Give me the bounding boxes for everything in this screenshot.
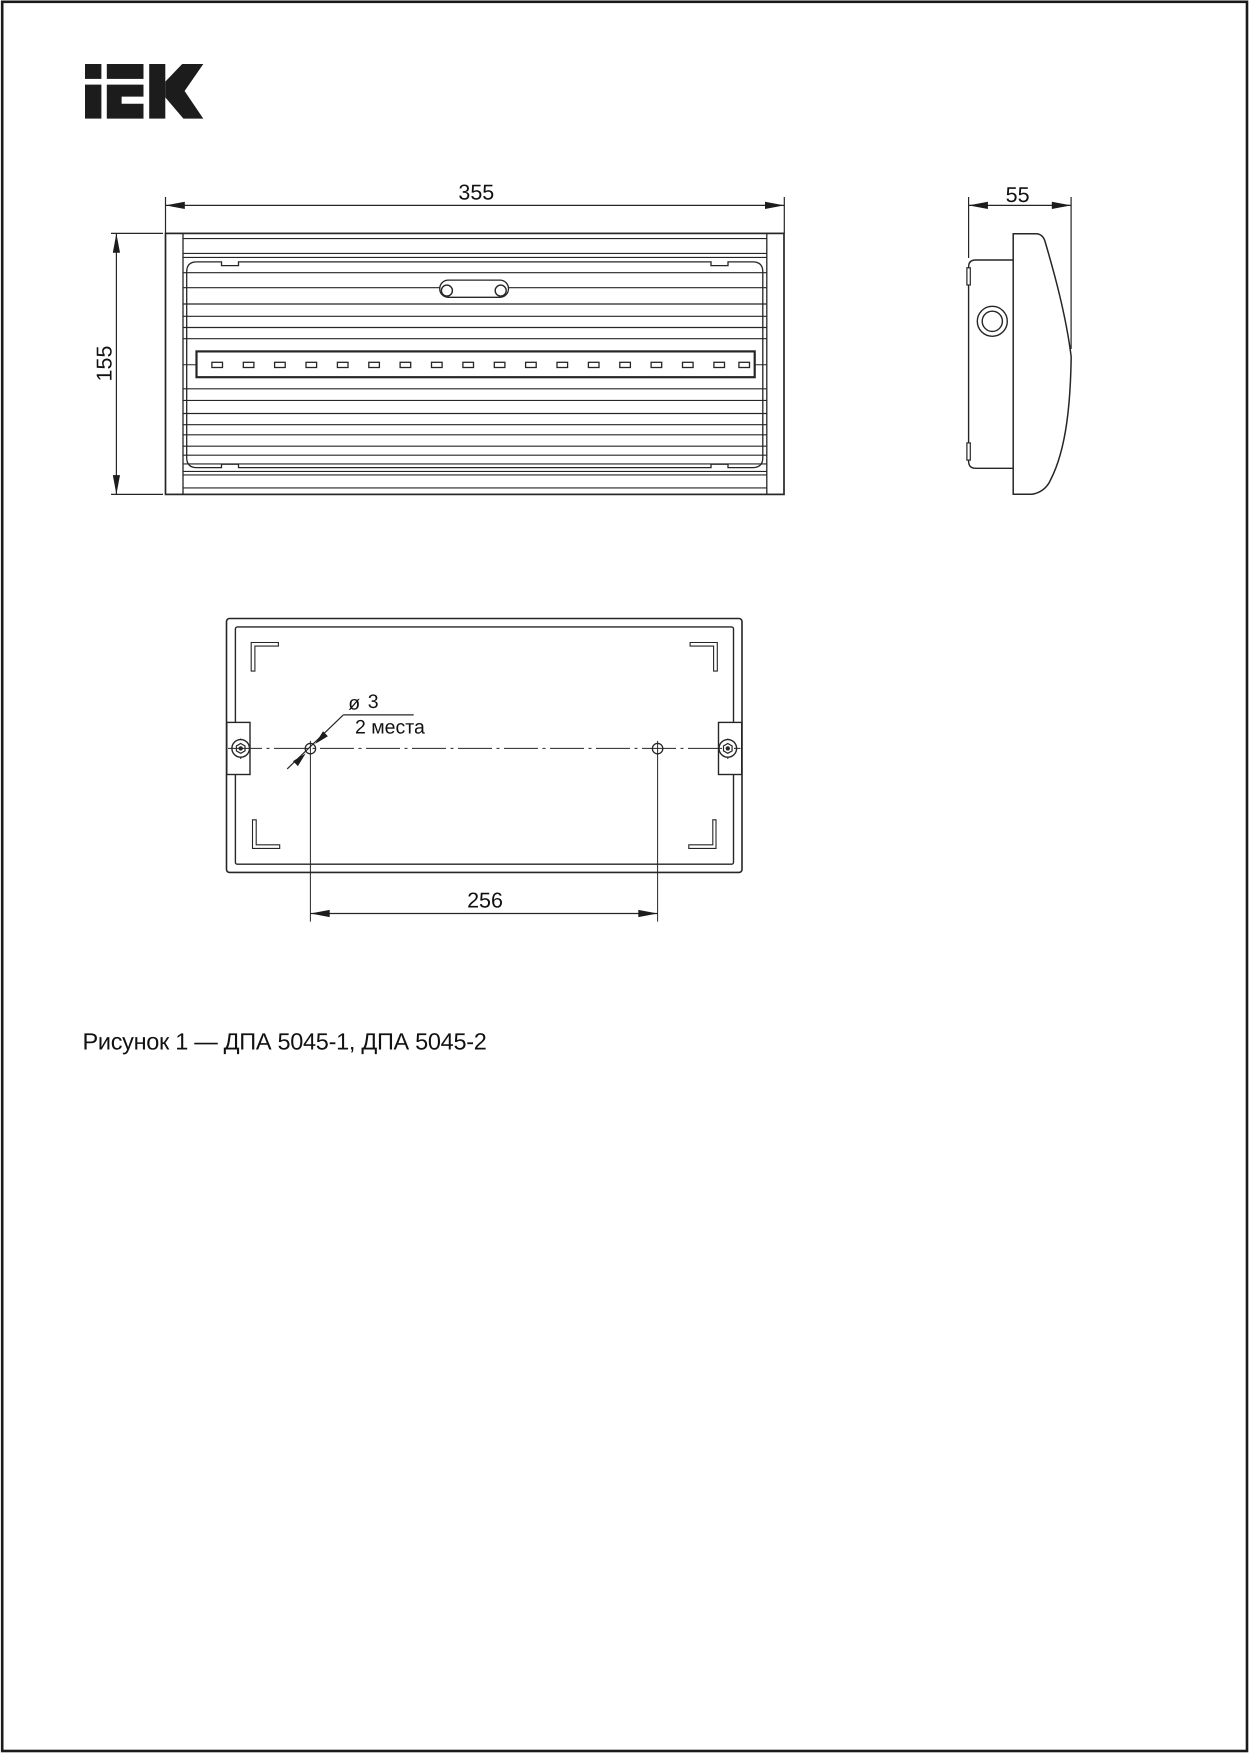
svg-text:355: 355 xyxy=(458,181,494,205)
svg-text:Рисунок 1 — ДПА 5045-1, ДПА 50: Рисунок 1 — ДПА 5045-1, ДПА 5045-2 xyxy=(83,1029,487,1055)
svg-text:256: 256 xyxy=(467,889,503,913)
svg-text:155: 155 xyxy=(93,346,117,382)
svg-text:3: 3 xyxy=(368,691,379,713)
svg-text:ø: ø xyxy=(348,693,360,715)
svg-text:2 места: 2 места xyxy=(355,716,425,738)
svg-text:55: 55 xyxy=(1006,183,1030,207)
